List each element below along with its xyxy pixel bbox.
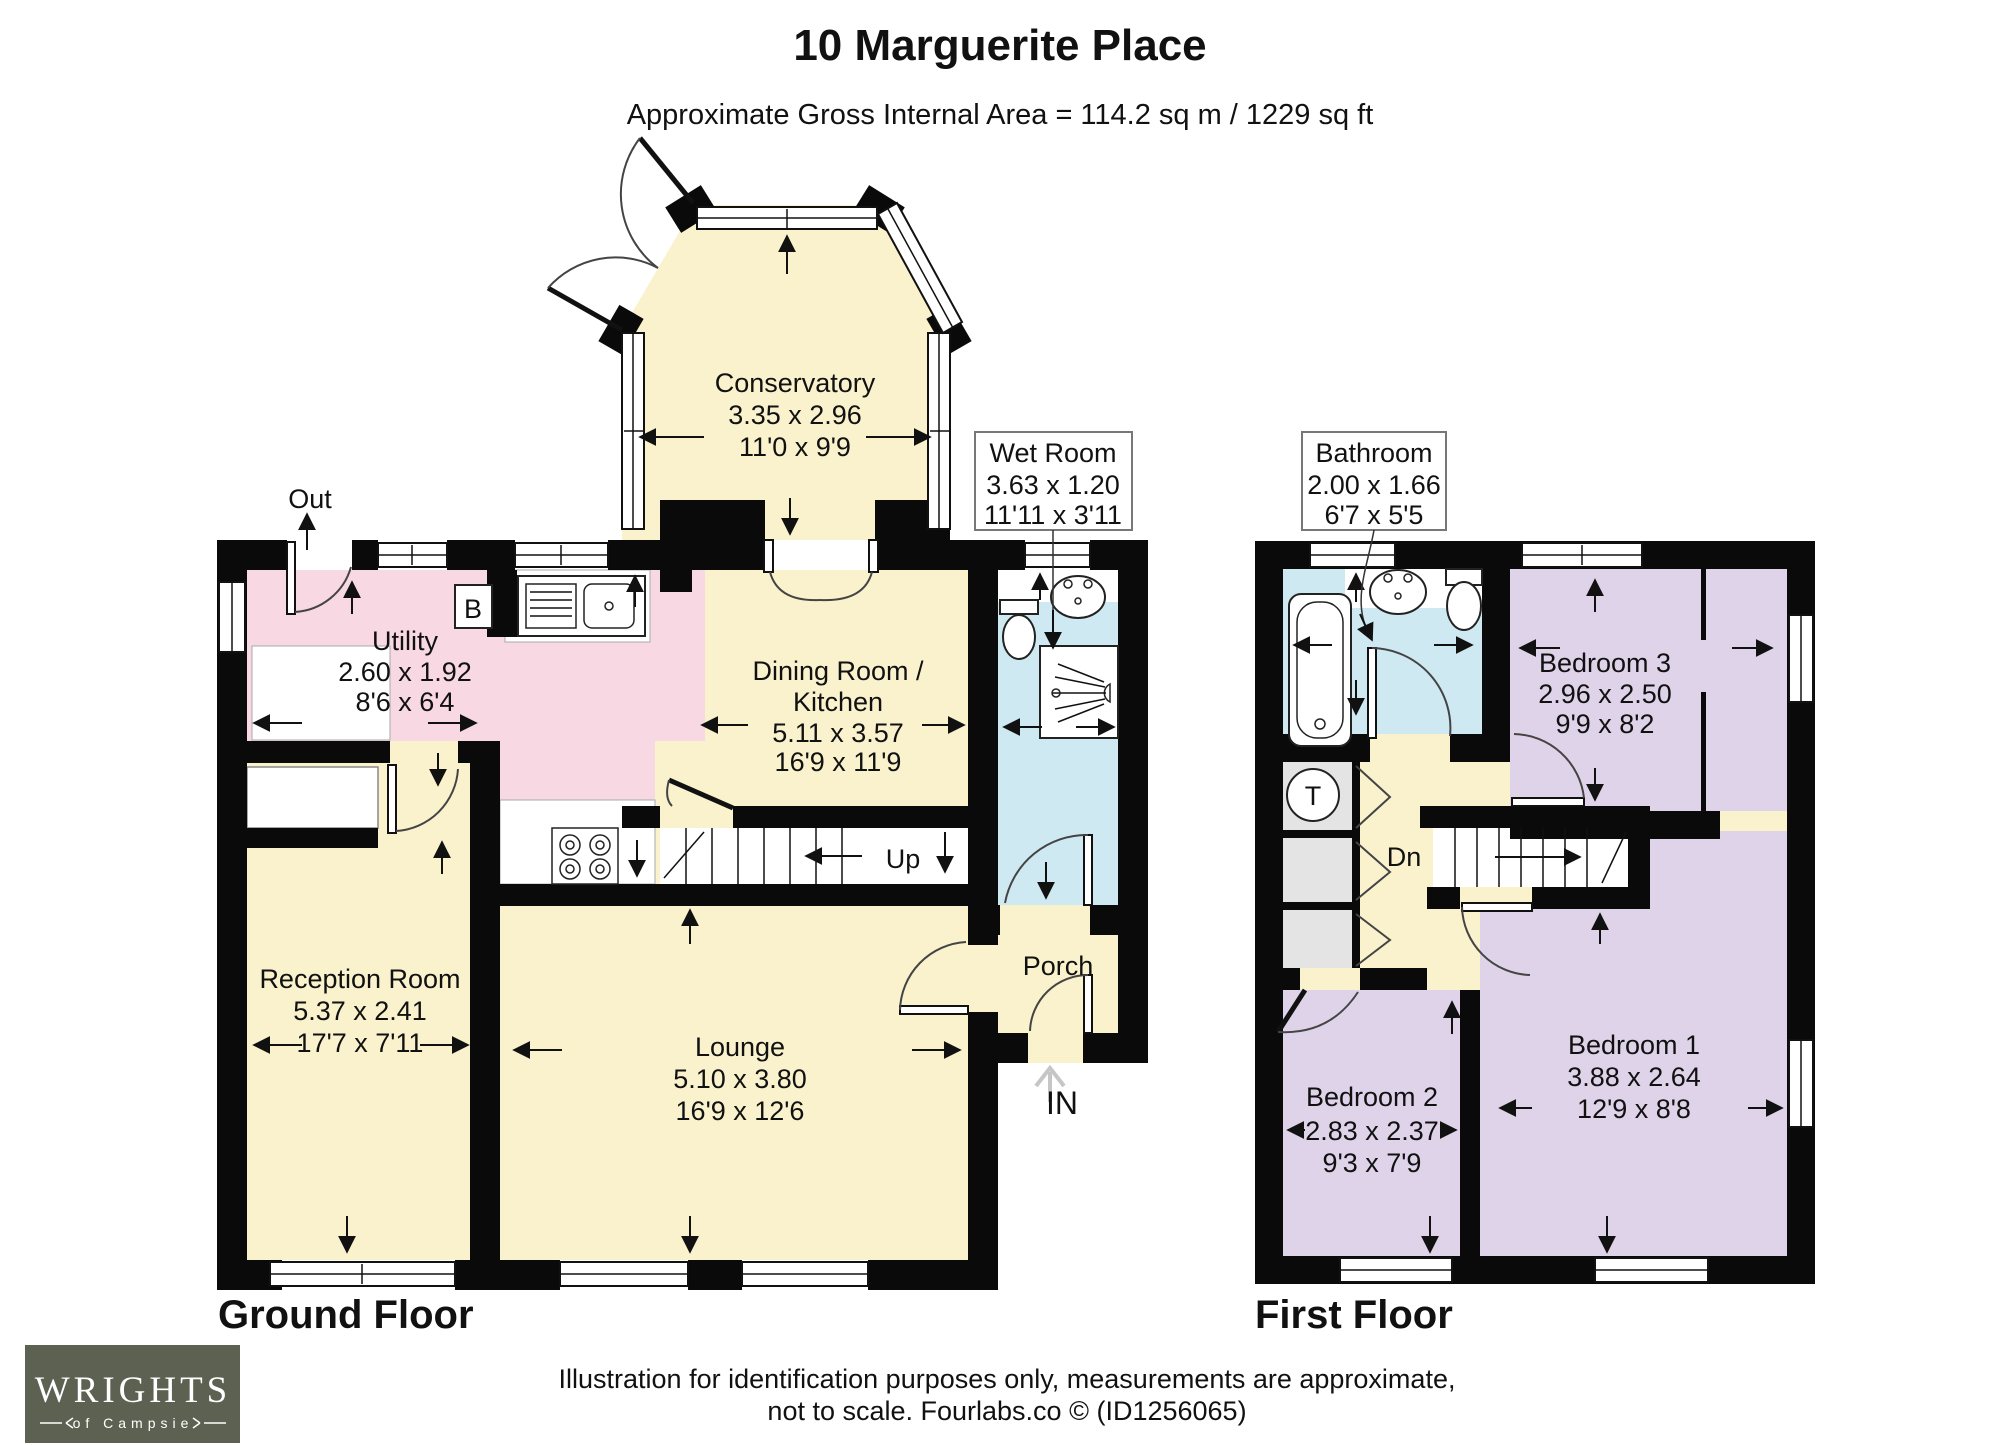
ground-floor-title: Ground Floor	[218, 1293, 474, 1337]
room-dim-ft-bedroom3: 9'9 x 8'2	[1556, 709, 1655, 739]
bathroom-toilet-icon	[1446, 569, 1482, 630]
room-dim-m-bathroom: 2.00 x 1.66	[1307, 470, 1441, 500]
room-dim-m-bedroom3: 2.96 x 2.50	[1538, 679, 1672, 709]
boiler-label: B	[464, 594, 482, 624]
room-label-reception: Reception Room	[259, 964, 460, 994]
room-dim-ft-reception: 17'7 x 7'11	[297, 1028, 424, 1058]
out-label: Out	[288, 484, 332, 514]
room-dim-ft-bathroom: 6'7 x 5'5	[1325, 500, 1424, 530]
room-label-dining-2: Kitchen	[793, 687, 883, 717]
room-dim-m-bedroom1: 3.88 x 2.64	[1567, 1062, 1701, 1092]
room-dim-ft-wet-room: 11'11 x 3'11	[984, 500, 1122, 530]
room-label-bedroom3: Bedroom 3	[1539, 648, 1671, 678]
room-dim-m-utility: 2.60 x 1.92	[338, 657, 472, 687]
room-dim-m-reception: 5.37 x 2.41	[293, 996, 427, 1026]
room-label-bedroom2: Bedroom 2	[1306, 1082, 1438, 1112]
room-label-utility: Utility	[372, 626, 438, 656]
room-label-porch: Porch	[1023, 951, 1094, 981]
down-label: Dn	[1387, 842, 1422, 872]
first-floor-plan: Bathroom 2.00 x 1.66 6'7 x 5'5 Bedroom 3…	[1255, 432, 1815, 1337]
room-dim-ft-bedroom1: 12'9 x 8'8	[1577, 1094, 1691, 1124]
room-label-lounge: Lounge	[695, 1032, 785, 1062]
wetroom-toilet-icon	[1000, 600, 1038, 659]
floorplan-page: 10 Marguerite Place Approximate Gross In…	[0, 0, 2000, 1445]
first-floor-title: First Floor	[1255, 1293, 1453, 1337]
tank-label: T	[1305, 781, 1322, 811]
bedroom1-upper	[1648, 831, 1787, 909]
up-label: Up	[886, 844, 921, 874]
agency-logo-name: WRIGHTS	[35, 1370, 232, 1411]
wetroom-sink-icon	[1051, 576, 1105, 618]
room-label-bathroom: Bathroom	[1315, 438, 1432, 468]
agency-logo-tagline: of Campsie	[73, 1415, 194, 1431]
room-label-conservatory: Conservatory	[715, 368, 876, 398]
reception-cupboard	[247, 767, 378, 828]
bathroom-sink-icon	[1370, 570, 1426, 614]
room-dim-ft-bedroom2: 9'3 x 7'9	[1323, 1148, 1422, 1178]
agency-logo: WRIGHTS of Campsie	[25, 1345, 240, 1443]
footer-line-1: Illustration for identification purposes…	[559, 1364, 1456, 1394]
room-dim-m-lounge: 5.10 x 3.80	[673, 1064, 807, 1094]
kitchen-sink-icon	[518, 576, 645, 636]
closet-lower	[1283, 910, 1352, 968]
footer-line-2: not to scale. Fourlabs.co © (ID1256065)	[767, 1396, 1246, 1426]
room-dim-ft-dining: 16'9 x 11'9	[775, 747, 902, 777]
bathtub-icon	[1289, 594, 1351, 746]
in-label: IN	[1046, 1085, 1078, 1121]
room-dim-ft-lounge: 16'9 x 12'6	[676, 1096, 805, 1126]
closet-middle	[1283, 838, 1352, 902]
room-dim-m-wet-room: 3.63 x 1.20	[986, 470, 1120, 500]
room-dim-m-conservatory: 3.35 x 2.96	[728, 400, 862, 430]
room-label-dining-1: Dining Room /	[752, 656, 924, 686]
room-label-bedroom1: Bedroom 1	[1568, 1030, 1700, 1060]
room-dim-ft-utility: 8'6 x 6'4	[356, 687, 455, 717]
ground-floor-plan: Conservatory 3.35 x 2.96 11'0 x 9'9 Util…	[217, 138, 1148, 1337]
room-dim-ft-conservatory: 11'0 x 9'9	[739, 432, 851, 462]
shower-icon	[1040, 646, 1118, 738]
page-title: 10 Marguerite Place	[793, 21, 1206, 70]
page-subtitle: Approximate Gross Internal Area = 114.2 …	[627, 99, 1374, 131]
room-dim-m-dining: 5.11 x 3.57	[772, 718, 904, 748]
room-dim-m-bedroom2: 2.83 x 2.37	[1305, 1116, 1439, 1146]
room-label-wet-room: Wet Room	[989, 438, 1116, 468]
floorplan-canvas: 10 Marguerite Place Approximate Gross In…	[0, 0, 2000, 1445]
